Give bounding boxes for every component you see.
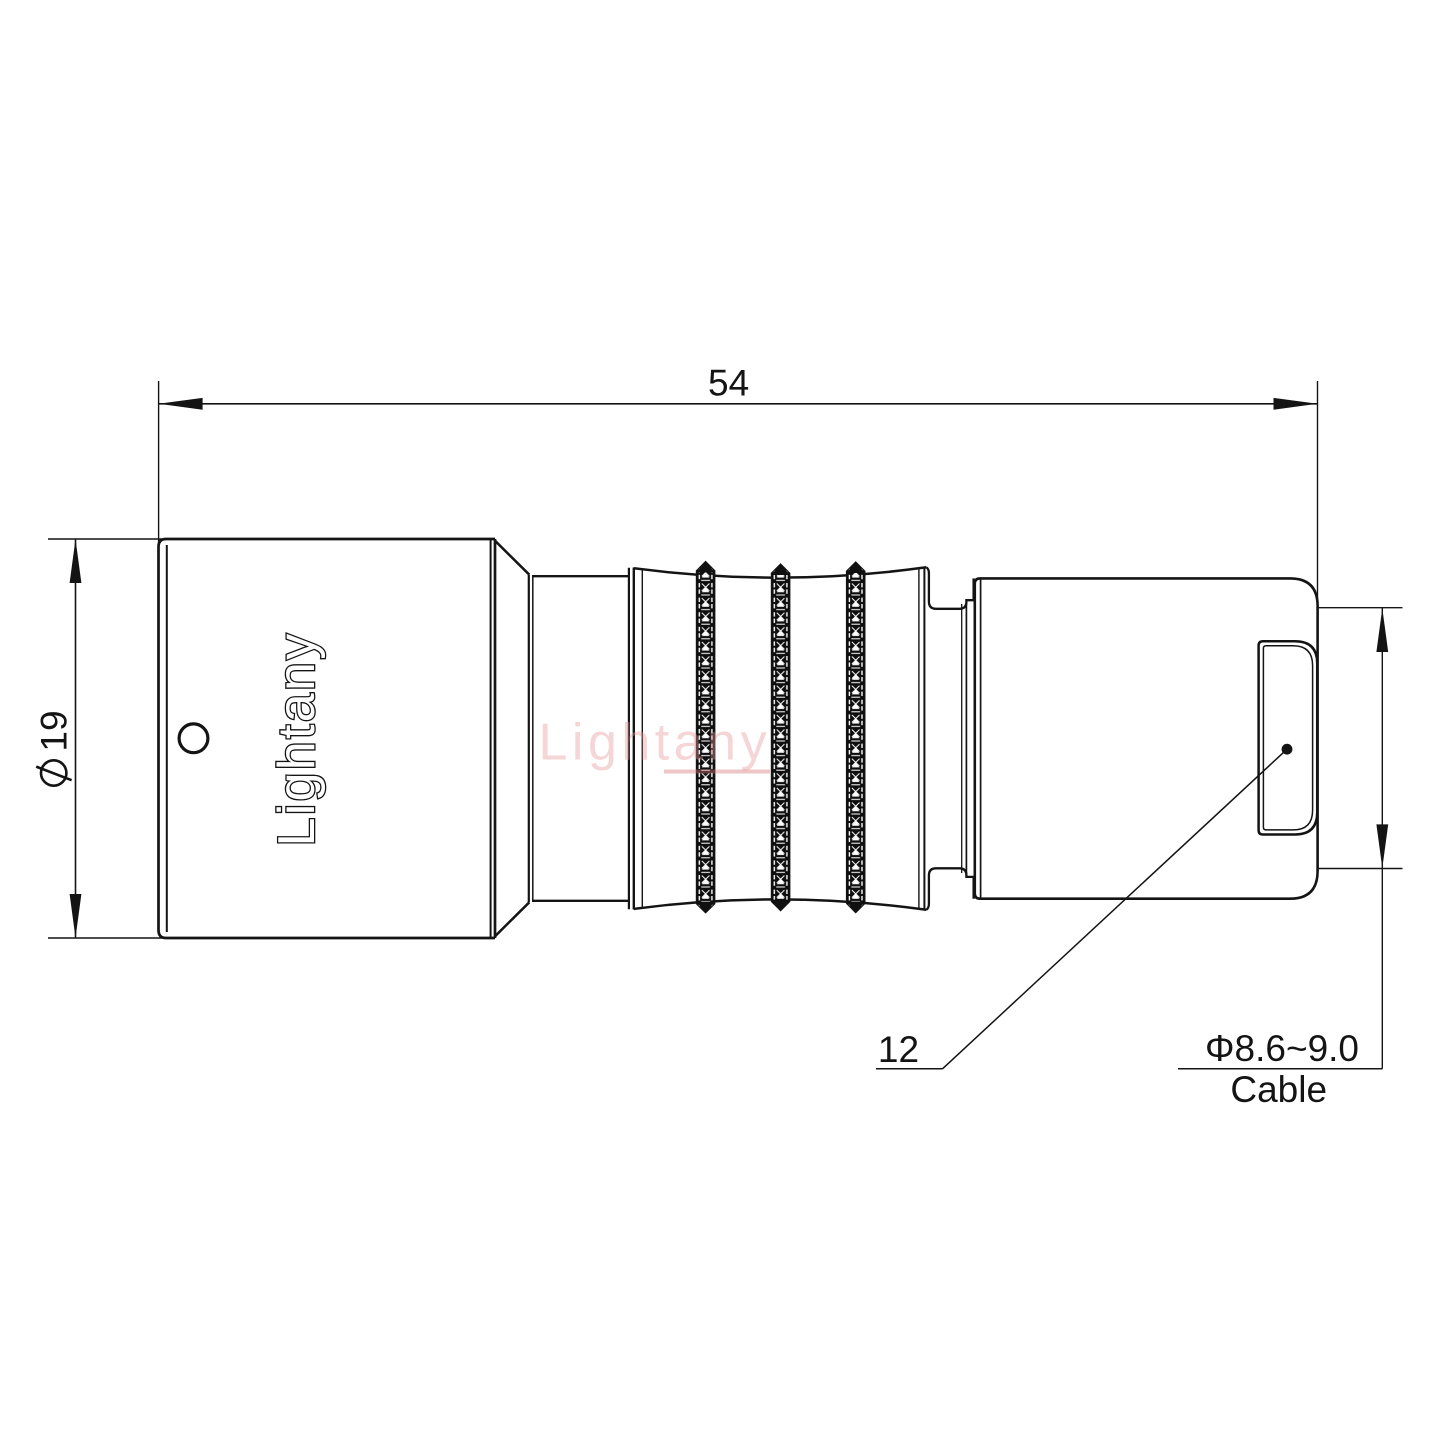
- svg-text:Lightany: Lightany: [268, 632, 326, 847]
- svg-text:Φ8.6~9.0: Φ8.6~9.0: [1205, 1028, 1359, 1069]
- svg-text:19: 19: [34, 710, 75, 751]
- svg-text:54: 54: [708, 363, 749, 404]
- svg-text:Cable: Cable: [1230, 1069, 1327, 1110]
- svg-text:Lightany: Lightany: [538, 714, 771, 772]
- svg-text:12: 12: [878, 1029, 919, 1070]
